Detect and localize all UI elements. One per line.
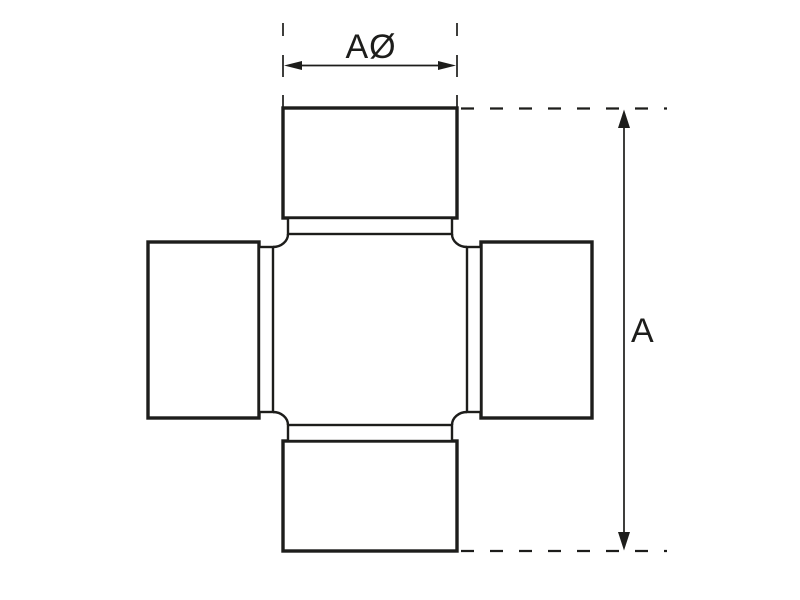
ujoint-cross-drawing: AØ A	[0, 0, 800, 600]
right-cup-collar	[467, 247, 481, 412]
bottom-bearing-cup	[283, 441, 457, 551]
bottom-cup-collar	[288, 425, 452, 441]
right-bearing-cup	[481, 242, 592, 418]
left-bearing-cup	[148, 242, 259, 418]
diameter-label: AØ	[345, 28, 396, 66]
top-cup-collar	[288, 218, 452, 234]
top-bearing-cup	[283, 108, 457, 218]
left-cup-collar	[259, 247, 273, 412]
length-label: A	[631, 312, 655, 350]
drawing-canvas: AØ A	[0, 0, 800, 600]
